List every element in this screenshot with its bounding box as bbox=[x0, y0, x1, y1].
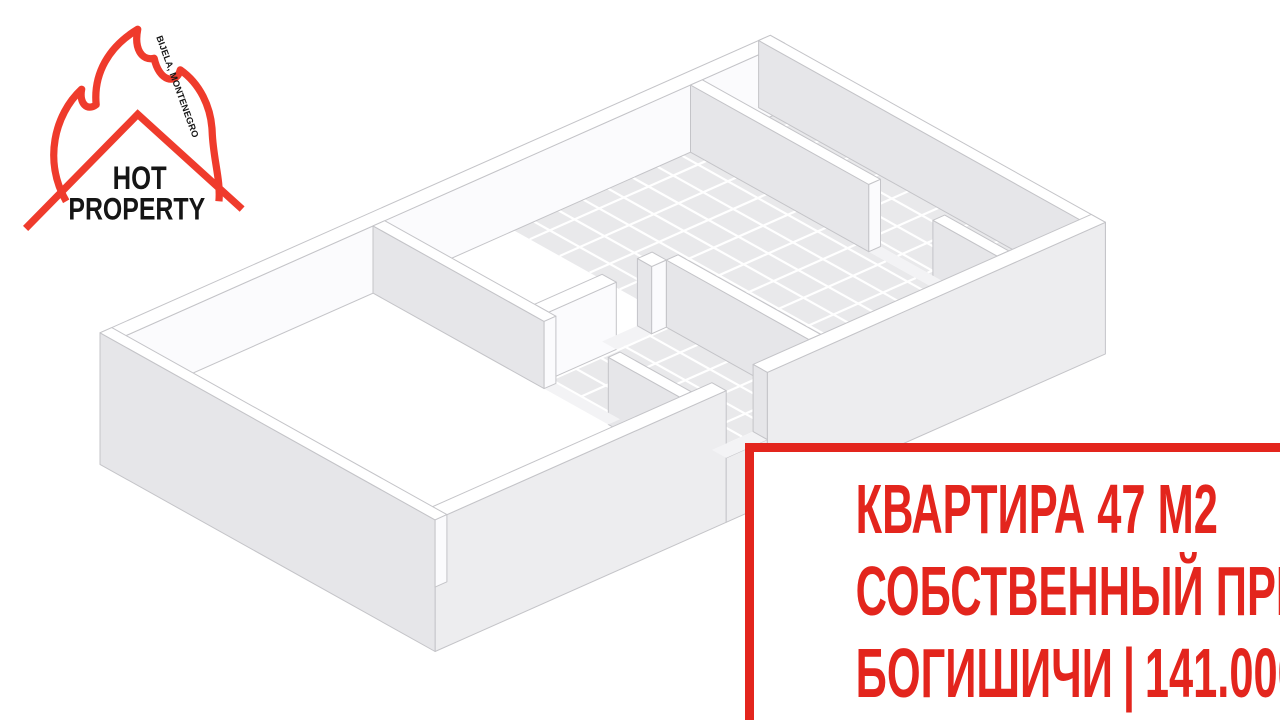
hot-property-ad: BIJELA, MONTENEGRO HOT PROPERTY КВАРТИРА… bbox=[0, 0, 1280, 720]
listing-feature: СОБСТВЕННЫЙ ПРИЧАЛ bbox=[856, 550, 1188, 632]
listing-title: КВАРТИРА 47 М2 bbox=[856, 468, 1188, 550]
listing-price: 141.000 € bbox=[1145, 634, 1280, 712]
hot-property-logo: BIJELA, MONTENEGRO HOT PROPERTY bbox=[14, 6, 246, 242]
logo-title-line2: PROPERTY bbox=[68, 192, 205, 228]
listing-location: БОГИШИЧИ bbox=[856, 634, 1113, 712]
listing-location-price: БОГИШИЧИ|141.000 € bbox=[856, 632, 1188, 714]
property-info-box: КВАРТИРА 47 М2 СОБСТВЕННЫЙ ПРИЧАЛ БОГИШИ… bbox=[745, 443, 1280, 720]
divider-bar: | bbox=[1123, 632, 1135, 714]
